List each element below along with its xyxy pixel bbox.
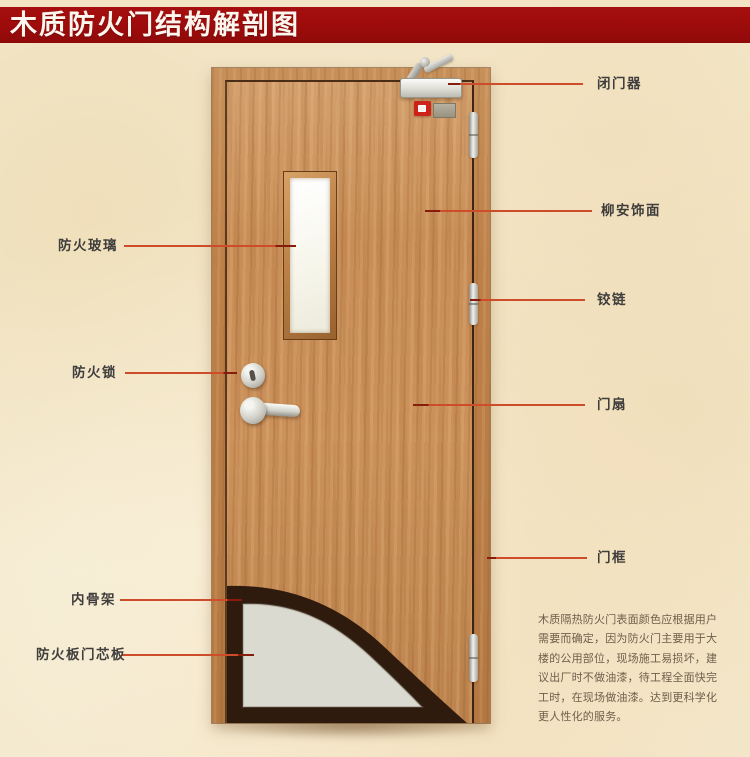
- label-fire-glass: 防火玻璃: [58, 238, 118, 254]
- description-line: 更人性化的服务。: [538, 708, 717, 727]
- glass-window-frame: [283, 171, 337, 340]
- poster-background: 木质防火门结构解剖图: [0, 0, 750, 757]
- description-line: 木质隔热防火门表面颜色应根据用户: [538, 611, 717, 630]
- fire-lock-cylinder: [241, 363, 265, 388]
- pointer-line-inner-skeleton: [120, 599, 242, 601]
- description-paragraph: 木质隔热防火门表面颜色应根据用户 需要而确定，因为防火门主要用于大 楼的公用部位…: [538, 611, 717, 727]
- hinge-middle: [469, 283, 478, 325]
- description-line: 议出厂时不做油漆，待工程全面快完: [538, 669, 717, 688]
- door-closer-joint: [420, 57, 430, 67]
- title-banner: 木质防火门结构解剖图: [0, 7, 750, 43]
- mounting-plate: [433, 103, 456, 118]
- label-core-board: 防火板门芯板: [36, 647, 126, 663]
- door-handle-rosette: [240, 397, 266, 424]
- pointer-line-hinge: [470, 299, 585, 301]
- pointer-line-fire-lock: [125, 372, 237, 374]
- fireproof-glass-pane: [290, 178, 330, 333]
- label-door-closer: 闭门器: [597, 76, 642, 92]
- description-line: 工时，在现场做油漆。达到更科学化: [538, 689, 717, 708]
- cutaway-section: [227, 580, 476, 723]
- door-frame: [212, 68, 490, 723]
- pointer-line-door-leaf: [413, 404, 585, 406]
- door-closer-body: [400, 78, 462, 98]
- pointer-line-door-frame: [487, 557, 587, 559]
- pointer-line-veneer: [425, 210, 592, 212]
- label-inner-skeleton: 内骨架: [71, 592, 116, 608]
- description-line: 需要而确定，因为防火门主要用于大: [538, 630, 717, 649]
- page-title: 木质防火门结构解剖图: [0, 7, 300, 43]
- door-leaf: [225, 80, 474, 723]
- hinge-top: [469, 112, 478, 158]
- pointer-line-core-board: [122, 654, 254, 656]
- label-hinge: 铰链: [597, 292, 627, 308]
- pointer-line-fire-glass: [124, 245, 296, 247]
- label-door-leaf: 门扇: [597, 397, 627, 413]
- label-door-frame: 门框: [597, 550, 627, 566]
- pointer-line-door-closer: [448, 83, 583, 85]
- label-veneer: 柳安饰面: [601, 203, 661, 219]
- description-line: 楼的公用部位，现场施工易损坏，建: [538, 650, 717, 669]
- label-fire-lock: 防火锁: [72, 365, 117, 381]
- alarm-box: [414, 101, 431, 116]
